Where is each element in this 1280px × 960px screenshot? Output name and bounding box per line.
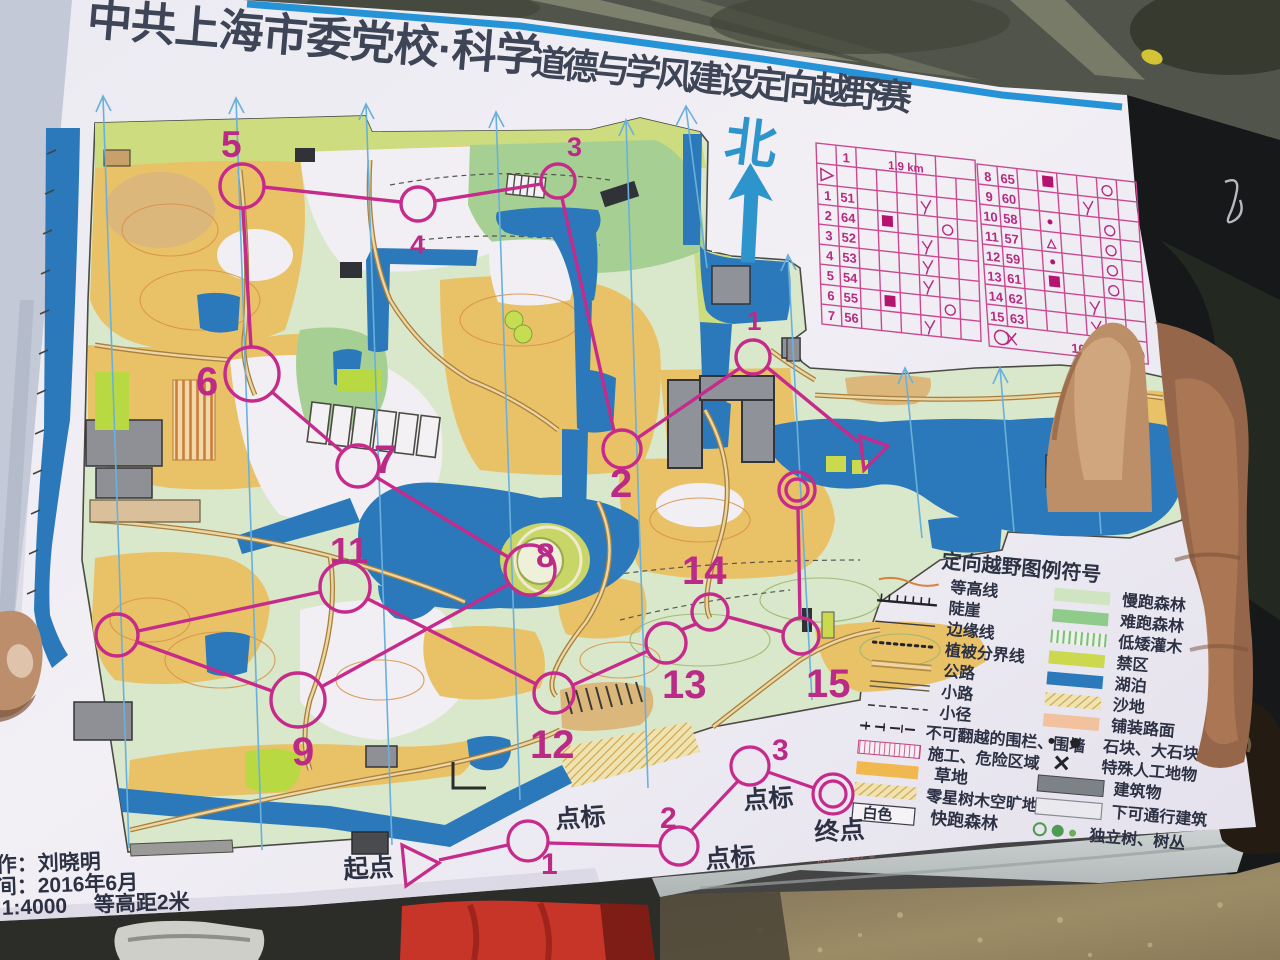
svg-text:点标: 点标 bbox=[704, 843, 756, 874]
svg-text:1: 1 bbox=[842, 150, 850, 166]
svg-text:12: 12 bbox=[985, 248, 1000, 265]
svg-text:14: 14 bbox=[988, 288, 1004, 305]
svg-text:64: 64 bbox=[841, 209, 857, 226]
svg-text:54: 54 bbox=[843, 269, 859, 286]
svg-text:62: 62 bbox=[1008, 291, 1023, 308]
svg-text:5: 5 bbox=[221, 124, 242, 165]
svg-text:白色: 白色 bbox=[862, 804, 893, 825]
svg-text:起点: 起点 bbox=[343, 853, 394, 884]
svg-text:53: 53 bbox=[842, 249, 857, 266]
svg-text:58: 58 bbox=[1003, 211, 1018, 228]
svg-text:2: 2 bbox=[824, 208, 832, 224]
svg-text:4: 4 bbox=[410, 230, 425, 260]
svg-text:12: 12 bbox=[530, 723, 575, 767]
svg-text:7: 7 bbox=[828, 308, 836, 324]
svg-text:草地: 草地 bbox=[933, 765, 969, 788]
svg-text:10: 10 bbox=[983, 208, 998, 225]
svg-text:65: 65 bbox=[1000, 171, 1015, 188]
svg-text:56: 56 bbox=[844, 309, 859, 326]
svg-text:点标: 点标 bbox=[554, 803, 606, 834]
svg-text:52: 52 bbox=[841, 229, 856, 246]
svg-text:1: 1 bbox=[541, 848, 558, 881]
svg-text:9: 9 bbox=[292, 730, 314, 774]
svg-text:8: 8 bbox=[536, 537, 555, 575]
svg-text:6: 6 bbox=[196, 360, 218, 404]
svg-text:3: 3 bbox=[825, 228, 833, 244]
svg-text:15: 15 bbox=[990, 308, 1005, 325]
svg-text:14: 14 bbox=[682, 549, 727, 593]
svg-text:终点: 终点 bbox=[813, 815, 865, 847]
svg-text:51: 51 bbox=[840, 189, 855, 206]
svg-text:57: 57 bbox=[1004, 231, 1019, 248]
svg-text:禁区: 禁区 bbox=[1116, 654, 1149, 675]
svg-text:7: 7 bbox=[374, 438, 396, 482]
svg-text:55: 55 bbox=[843, 289, 858, 306]
svg-text:3: 3 bbox=[772, 734, 789, 767]
svg-text:2: 2 bbox=[610, 462, 632, 506]
svg-text:3: 3 bbox=[567, 132, 582, 162]
svg-text:8: 8 bbox=[984, 169, 992, 185]
svg-text:60: 60 bbox=[1001, 191, 1016, 208]
svg-text:61: 61 bbox=[1007, 271, 1022, 288]
svg-text:13: 13 bbox=[987, 268, 1002, 285]
svg-text:11: 11 bbox=[330, 530, 368, 571]
svg-text:63: 63 bbox=[1009, 311, 1024, 328]
svg-text:9: 9 bbox=[985, 189, 993, 205]
svg-text:11: 11 bbox=[984, 228, 999, 245]
svg-text:15: 15 bbox=[806, 662, 851, 706]
svg-text:点标: 点标 bbox=[742, 784, 794, 815]
svg-text:1: 1 bbox=[824, 188, 832, 204]
svg-text:59: 59 bbox=[1005, 251, 1020, 268]
svg-text:6: 6 bbox=[827, 288, 835, 304]
svg-text:5: 5 bbox=[826, 268, 834, 284]
svg-text:1: 1 bbox=[747, 306, 761, 336]
svg-text:2: 2 bbox=[660, 802, 677, 835]
svg-text:13: 13 bbox=[662, 663, 707, 707]
svg-text:4: 4 bbox=[826, 248, 834, 264]
